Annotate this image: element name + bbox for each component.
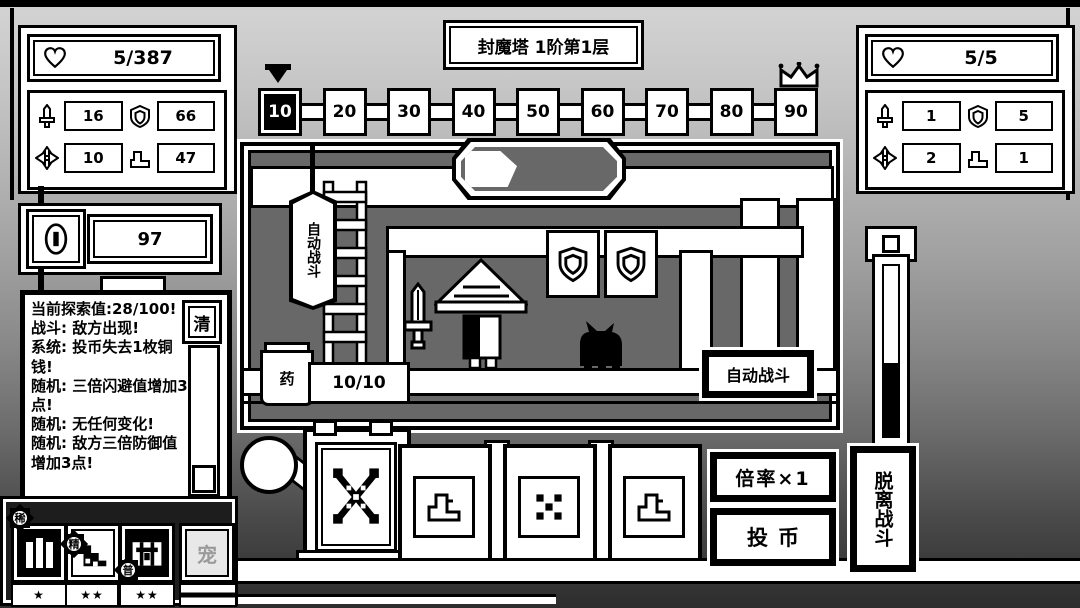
multiplier-button[interactable]: 倍率×1 [710,452,836,502]
battle-gauge [862,226,914,442]
log-clear-button[interactable]: 清 [182,300,222,344]
rarity-badge-label: 普 [121,563,135,577]
cross-star-icon [873,146,897,170]
log-line: 随机: 敌方三倍防御值增加3点! [31,434,189,472]
battle-log-panel: 当前探索值:28/100! 战斗: 敌方出现! 系统: 投币失去1枚铜钱! 随机… [20,290,232,504]
player-speed-value: 47 [157,143,216,173]
log-line: 当前探索值:28/100! [31,300,189,319]
potion-jar[interactable]: 药 [260,342,308,400]
reel-window [623,476,685,538]
stamina-capsule-core [461,147,617,191]
heart-icon [42,46,68,70]
enemy-hp-box: 5/5 [865,34,1059,82]
enemy-creature [572,318,630,370]
track-node: 70 [645,88,689,136]
log-clear-label: 清 [194,310,211,335]
auto-battle-sign-face: 自动战斗 [293,194,333,306]
player-atk-value: 16 [64,101,123,131]
star-rating-empty [179,583,237,607]
shield-icon [966,104,990,128]
track-node: 40 [452,88,496,136]
enemy-dodge-value: 2 [902,143,961,173]
shield-banner [546,230,600,298]
enemy-hp-value: 5/5 [906,47,1056,69]
player-substats-row2: 10 47 [35,143,215,173]
boot-icon [424,487,464,527]
crown-icon [777,62,821,90]
rarity-badge-label: 精 [67,537,81,551]
coin-machine[interactable] [303,428,411,570]
reel-window [518,476,580,538]
coin-panel: 97 [18,203,222,275]
coin-count-box: 97 [87,214,213,264]
battle-log-lines: 当前探索值:28/100! 战斗: 敌方出现! 系统: 投币失去1枚铜钱! 随机… [31,300,189,473]
track-node: 90 [774,88,818,136]
panel-connector [38,186,44,204]
enemy-substats-row1: 1 5 [873,101,1053,131]
player-def-value: 66 [157,101,216,131]
heart-icon [880,46,906,70]
enemy-atk-value: 1 [902,101,961,131]
track-node: 30 [387,88,431,136]
shield-icon [613,242,649,286]
rarity-badge: 精 [61,531,87,557]
player-dodge-value: 10 [64,143,123,173]
dropped-sword [402,282,434,350]
left-frame-line [10,8,14,200]
star-rating-2: ★★ [65,583,119,607]
star-rating-3: ★★ [119,583,175,607]
shield-icon [555,242,591,286]
player-substats-row1: 16 66 [35,101,215,131]
sword-icon [35,104,59,128]
coin-icon-box [26,209,86,269]
inventory-slot-pet[interactable]: 宠 [179,523,235,583]
cross-star-icon [35,146,59,170]
slot-reel-2 [503,444,597,576]
marker-icon [265,64,291,84]
gauge-fill [882,264,900,438]
stamina-capsule-fill [465,151,517,187]
log-scrollbar[interactable] [188,345,220,497]
multiplier-button-label: 倍率×1 [735,464,810,491]
slot-reel-1 [398,444,492,576]
battle-scene-viewport: 自动战斗 [240,142,840,430]
star-rating-1: ★ [11,583,67,607]
slot-reel-3 [608,444,702,576]
track-connector [496,103,517,121]
boot-icon [128,146,152,170]
auto-battle-sign-text: 自动战斗 [303,222,323,278]
gauge-tube [872,254,910,448]
sword-icon [873,104,897,128]
rarity-badge: 普 [115,557,141,583]
coin-icon [39,218,73,260]
machine-tab [369,420,393,436]
coin-count: 97 [137,229,162,250]
log-line: 系统: 投币失去1枚铜钱! [31,338,189,376]
shield-icon [128,104,152,128]
hero-character [434,258,528,370]
track-connector [367,103,388,121]
leave-battle-button-label: 脱离战斗 [870,471,897,547]
track-node: 20 [323,88,367,136]
track-connector [689,103,710,121]
log-scrollbar-thumb[interactable] [192,465,216,493]
rarity-badge-label: 稀 [13,511,27,525]
crossed-pattern-icon [327,457,385,537]
log-line: 战斗: 敌方出现! [31,319,189,338]
stamina-capsule-rim [456,142,622,196]
gauge-cap-notch [882,235,900,253]
bottom-floor-strip [228,558,1080,584]
auto-battle-button-label: 自动战斗 [726,362,790,386]
enemy-substats-box: 1 5 2 1 [865,90,1065,190]
leave-battle-button[interactable]: 脱离战斗 [850,446,916,572]
track-node-current: 10 [258,88,302,136]
boot-icon [966,146,990,170]
game-screen: 封魔塔 1阶第1层 5/387 16 66 10 47 5/5 [0,0,1080,608]
track-connector [560,103,581,121]
potion-jar-body: 药 [260,350,314,406]
sign-pole [310,146,315,192]
player-stats-panel: 5/387 16 66 10 47 [18,25,237,194]
player-hp-box: 5/387 [27,34,221,82]
track-node: 80 [710,88,754,136]
track-connector [431,103,452,121]
boot-icon [634,487,674,527]
potion-count-box: 10/10 [308,362,410,404]
enemy-substats-row2: 2 1 [873,143,1053,173]
insert-coin-button-label: 投币 [737,522,809,552]
stamina-capsule [452,138,626,200]
enemy-def-value: 5 [995,101,1054,131]
rarity-badge: 稀 [7,505,33,531]
potion-count: 10/10 [332,373,386,393]
player-hp-value: 5/387 [68,47,218,69]
shield-banner [604,230,658,298]
enemy-stats-panel: 5/5 1 5 2 1 [856,25,1075,194]
floor-track-nodes: 10 20 30 40 50 60 70 80 90 [258,88,818,136]
machine-tab [313,420,337,436]
auto-battle-button[interactable]: 自动战斗 [702,350,814,398]
scrolls-icon [22,534,56,572]
track-node: 50 [516,88,560,136]
floor-track: 10 20 30 40 50 60 70 80 90 [258,64,818,138]
track-node: 60 [581,88,625,136]
log-line: 随机: 三倍闪避值增加3点! [31,377,189,415]
log-line: 随机: 无任何变化! [31,415,189,434]
pet-slot-label: 宠 [197,539,217,568]
auto-battle-sign: 自动战斗 [289,190,337,310]
top-frame-bar [0,0,1080,7]
enemy-speed-value: 1 [995,143,1054,173]
machine-face [315,442,397,552]
coin-lever-handle[interactable] [240,436,298,494]
track-connector [302,103,323,121]
page-title: 封魔塔 1阶第1层 [443,20,644,70]
dotted-cross-icon [531,489,567,525]
page-title-text: 封魔塔 1阶第1层 [478,33,610,58]
track-connector [754,103,775,121]
reel-window [413,476,475,538]
inventory-panel: 宠 稀 精 普 ★ ★★ ★★ [0,496,238,606]
panel-connector [38,268,44,292]
player-substats-box: 16 66 10 47 [27,90,227,190]
track-connector [625,103,646,121]
insert-coin-button[interactable]: 投币 [710,508,836,566]
potion-jar-label: 药 [279,368,294,389]
